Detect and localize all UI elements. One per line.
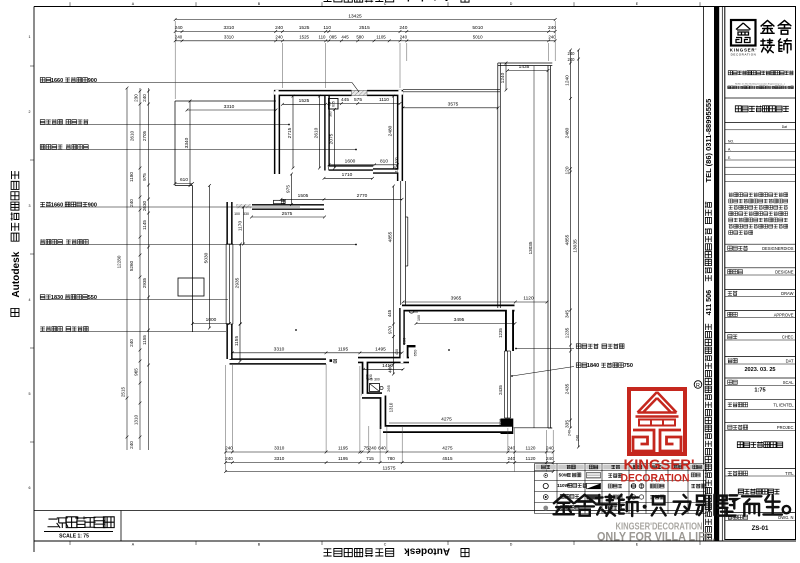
- svg-text:13425: 13425: [348, 13, 362, 19]
- svg-text:5010: 5010: [472, 25, 483, 31]
- svg-text:1195: 1195: [338, 347, 349, 353]
- svg-text:2575: 2575: [282, 211, 293, 217]
- svg-text:900: 900: [88, 202, 97, 208]
- svg-text:240: 240: [400, 34, 408, 39]
- svg-text:240: 240: [546, 446, 554, 451]
- svg-text:3: 3: [29, 204, 31, 208]
- svg-text:345: 345: [565, 310, 571, 318]
- svg-text:605: 605: [332, 101, 336, 107]
- svg-text:E.: E.: [728, 156, 731, 160]
- svg-text:DAT: DAT: [786, 359, 794, 364]
- svg-text:DECORATION: DECORATION: [731, 53, 757, 57]
- svg-text:240: 240: [225, 446, 233, 451]
- svg-text:240: 240: [275, 34, 283, 39]
- svg-text:4515: 4515: [442, 456, 453, 461]
- svg-text:110: 110: [319, 34, 327, 39]
- svg-text:110: 110: [323, 25, 331, 31]
- svg-text:400: 400: [395, 349, 399, 355]
- svg-text:5: 5: [29, 392, 31, 396]
- svg-text:975: 975: [286, 185, 292, 193]
- svg-text:2075: 2075: [329, 133, 335, 144]
- svg-text:DESIGNERDIOS: DESIGNERDIOS: [762, 246, 794, 251]
- svg-text:1000: 1000: [206, 317, 217, 323]
- svg-text:240: 240: [568, 51, 576, 56]
- svg-text:DECORATION: DECORATION: [621, 473, 690, 485]
- svg-text:1525: 1525: [299, 34, 309, 39]
- svg-text:75240: 75240: [364, 446, 377, 451]
- svg-text:265: 265: [386, 384, 391, 391]
- svg-text:5010: 5010: [473, 34, 483, 39]
- svg-text:TEL (86) 0311-88995555: TEL (86) 0311-88995555: [704, 99, 713, 183]
- svg-text:900: 900: [88, 78, 97, 84]
- svg-text:1505: 1505: [298, 193, 309, 199]
- svg-text:240: 240: [275, 25, 283, 31]
- svg-text:3575: 3575: [448, 102, 459, 108]
- svg-text:2705: 2705: [142, 130, 147, 141]
- svg-text:120: 120: [395, 167, 399, 173]
- svg-text:335: 335: [498, 418, 503, 425]
- svg-text:KINGSER': KINGSER': [624, 457, 695, 474]
- svg-text:2515: 2515: [359, 25, 370, 31]
- svg-text:1120: 1120: [526, 456, 536, 461]
- svg-text:1435: 1435: [519, 64, 530, 70]
- svg-text:1105: 1105: [376, 34, 386, 39]
- svg-text:KINGSER': KINGSER': [730, 47, 757, 52]
- svg-text:5030: 5030: [204, 252, 210, 263]
- svg-text:1120: 1120: [526, 446, 536, 451]
- svg-text:240: 240: [175, 34, 183, 39]
- svg-text:120: 120: [565, 166, 571, 174]
- svg-text:780: 780: [387, 456, 395, 461]
- svg-text:4855: 4855: [565, 234, 571, 245]
- svg-text:1310: 1310: [389, 402, 394, 412]
- svg-text:1110: 1110: [379, 97, 389, 103]
- svg-text:2: 2: [29, 110, 31, 114]
- svg-text:1: 1: [29, 35, 31, 39]
- svg-text:2435: 2435: [565, 383, 571, 394]
- svg-text:NO.: NO.: [728, 140, 734, 144]
- svg-text:5260: 5260: [129, 260, 134, 271]
- svg-text:411 506: 411 506: [704, 290, 713, 316]
- svg-text:D: D: [510, 2, 513, 6]
- svg-text:1195: 1195: [338, 456, 348, 461]
- svg-text:2480: 2480: [565, 127, 571, 138]
- svg-text:2610: 2610: [130, 130, 135, 141]
- svg-text:1840: 1840: [587, 363, 599, 369]
- svg-text:6: 6: [29, 486, 31, 490]
- svg-text:4275: 4275: [441, 417, 452, 423]
- svg-text:240: 240: [142, 94, 147, 102]
- svg-text:CHEC: CHEC: [782, 335, 794, 340]
- svg-text:610: 610: [180, 177, 188, 183]
- svg-text:4: 4: [29, 298, 31, 302]
- svg-text:4855: 4855: [388, 231, 394, 242]
- svg-text:Autodesk: Autodesk: [11, 251, 22, 297]
- svg-text:240: 240: [399, 25, 407, 31]
- svg-text:1235: 1235: [498, 328, 503, 338]
- svg-text:1710: 1710: [342, 172, 353, 178]
- svg-text:Dat: Dat: [782, 125, 787, 129]
- svg-text:1240: 1240: [565, 75, 571, 86]
- svg-text:810: 810: [380, 159, 388, 165]
- svg-text:360: 360: [329, 111, 333, 117]
- svg-text:240: 240: [507, 446, 515, 451]
- svg-text:230: 230: [134, 94, 139, 102]
- svg-text:1525: 1525: [299, 98, 310, 104]
- svg-text:240: 240: [129, 199, 134, 207]
- svg-text:580: 580: [356, 34, 364, 39]
- svg-text:575: 575: [354, 97, 362, 103]
- svg-text:1310: 1310: [134, 414, 139, 425]
- svg-text:3310: 3310: [224, 34, 234, 39]
- svg-text:750: 750: [624, 363, 633, 369]
- svg-text:SCALE 1: 75: SCALE 1: 75: [59, 534, 89, 540]
- svg-text:130: 130: [369, 374, 373, 380]
- svg-text:ZS-01: ZS-01: [752, 525, 769, 532]
- svg-text:1:75: 1:75: [754, 388, 765, 394]
- svg-text:TITL: TITL: [785, 471, 794, 476]
- svg-text:1525: 1525: [299, 25, 310, 31]
- svg-text:085: 085: [329, 34, 337, 39]
- svg-text:100: 100: [395, 158, 399, 164]
- svg-text:1180: 1180: [129, 172, 134, 182]
- svg-text:240: 240: [576, 435, 580, 441]
- svg-text:550: 550: [88, 295, 97, 301]
- svg-text:1410: 1410: [382, 363, 393, 369]
- svg-text:2715: 2715: [287, 127, 293, 138]
- svg-text:C: C: [384, 2, 387, 6]
- svg-text:1660: 1660: [51, 78, 63, 84]
- svg-text:ONLY FOR VILLA LIFE.: ONLY FOR VILLA LIFE.: [597, 531, 715, 544]
- svg-text:2935: 2935: [142, 277, 147, 288]
- svg-text:2435: 2435: [498, 385, 503, 395]
- svg-text:240: 240: [546, 456, 554, 461]
- svg-text:3310: 3310: [274, 456, 285, 461]
- svg-text:240: 240: [507, 456, 515, 461]
- svg-text:APPROVE: APPROVE: [774, 312, 794, 317]
- svg-text:2023. 03. 25: 2023. 03. 25: [744, 367, 775, 373]
- svg-text:DWG. N: DWG. N: [778, 515, 793, 520]
- svg-text:445: 445: [341, 34, 349, 39]
- svg-text:C: C: [384, 543, 387, 547]
- svg-text:240: 240: [175, 25, 183, 31]
- svg-text:1600: 1600: [345, 159, 356, 165]
- svg-text:2610: 2610: [314, 127, 320, 138]
- svg-text:100: 100: [234, 212, 240, 216]
- svg-text:3495: 3495: [454, 317, 465, 323]
- svg-text:1235: 1235: [565, 327, 571, 338]
- svg-text:1240: 1240: [500, 72, 506, 83]
- svg-text:D: D: [510, 543, 513, 547]
- svg-text:PROJEC: PROJEC: [777, 425, 794, 430]
- svg-text:1145: 1145: [142, 220, 147, 230]
- svg-text:3310: 3310: [274, 347, 285, 353]
- svg-text:240: 240: [129, 339, 134, 347]
- svg-text:445: 445: [387, 309, 392, 317]
- svg-text:2480: 2480: [388, 125, 394, 136]
- svg-text:965: 965: [134, 368, 139, 376]
- svg-text:DESIGNE: DESIGNE: [775, 270, 794, 275]
- svg-text:300: 300: [374, 378, 380, 382]
- svg-text:240: 240: [568, 57, 576, 62]
- svg-text:1495: 1495: [375, 347, 386, 353]
- svg-text:335: 335: [565, 420, 571, 428]
- svg-text:2935: 2935: [235, 277, 241, 288]
- svg-text:2515: 2515: [121, 386, 126, 397]
- svg-text:11575: 11575: [383, 465, 396, 471]
- svg-text:715: 715: [366, 456, 374, 461]
- svg-text:230: 230: [402, 337, 407, 344]
- svg-text:3340: 3340: [184, 137, 190, 148]
- svg-text:330: 330: [243, 212, 249, 216]
- svg-text:3310: 3310: [224, 104, 235, 110]
- svg-text:13035: 13035: [528, 241, 533, 254]
- svg-text:1660: 1660: [51, 202, 63, 208]
- svg-text:SCAL: SCAL: [783, 380, 794, 385]
- svg-text:R: R: [696, 383, 700, 389]
- svg-text:TL IENTEL: TL IENTEL: [773, 403, 794, 408]
- svg-text:240: 240: [225, 456, 233, 461]
- svg-text:640: 640: [378, 446, 386, 451]
- svg-text:Autodesk: Autodesk: [404, 0, 450, 2]
- svg-text:240: 240: [129, 441, 134, 449]
- svg-text:1155: 1155: [234, 336, 240, 347]
- svg-text:3310: 3310: [223, 25, 234, 31]
- svg-text:650: 650: [413, 349, 418, 356]
- svg-text:970: 970: [388, 326, 394, 334]
- svg-text:13035: 13035: [573, 239, 579, 253]
- svg-text:3310: 3310: [274, 446, 285, 451]
- svg-text:2630: 2630: [142, 200, 147, 211]
- svg-text:1120: 1120: [523, 296, 534, 302]
- svg-text:1155: 1155: [142, 335, 147, 345]
- svg-text:445: 445: [341, 97, 349, 103]
- svg-text:1830: 1830: [51, 295, 63, 301]
- svg-text:975: 975: [142, 173, 147, 181]
- svg-text:DRAW: DRAW: [781, 291, 793, 296]
- svg-text:240: 240: [568, 430, 572, 436]
- svg-text:100: 100: [417, 315, 421, 321]
- svg-text:12280: 12280: [117, 255, 122, 268]
- svg-text:1170: 1170: [238, 221, 244, 232]
- svg-text:4275: 4275: [442, 446, 453, 451]
- svg-text:2770: 2770: [357, 193, 368, 199]
- svg-text:Autodesk: Autodesk: [404, 546, 450, 557]
- svg-text:He/Bei Jin She Building Decora: He/Bei Jin She Building Decoration Engin…: [735, 82, 786, 85]
- svg-text:1195: 1195: [338, 446, 348, 451]
- svg-text:A.: A.: [728, 148, 731, 152]
- svg-text:3965: 3965: [451, 296, 462, 302]
